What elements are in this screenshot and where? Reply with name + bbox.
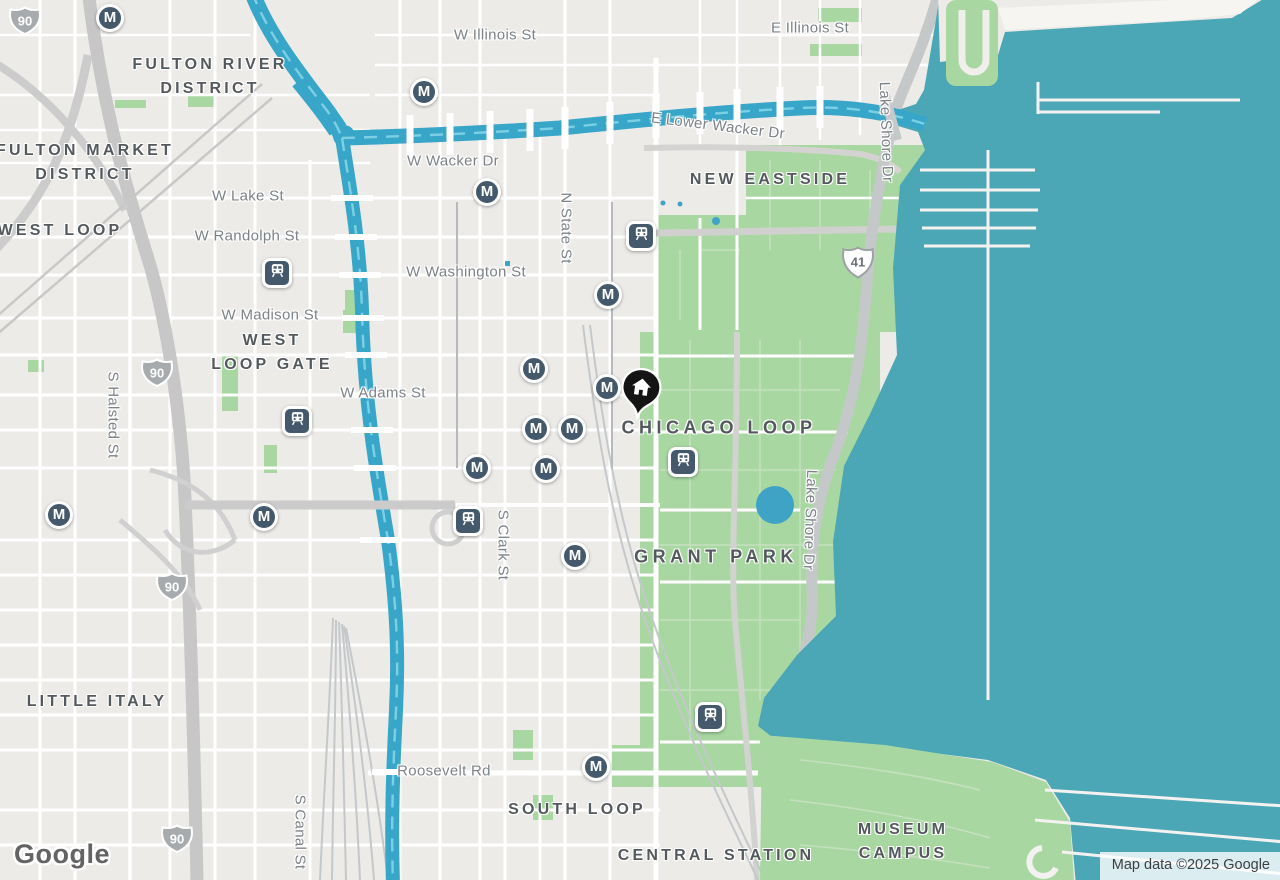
home-saved-place-pin[interactable]	[612, 363, 668, 432]
metro-station-marker-1[interactable]: M	[96, 4, 124, 32]
metro-station-marker-10[interactable]: M	[532, 455, 560, 483]
metro-station-marker-12[interactable]: M	[250, 503, 278, 531]
street-label-e-illinois-st: E Illinois St	[771, 20, 849, 37]
street-label-roosevelt-rd: Roosevelt Rd	[397, 763, 491, 780]
map-canvas[interactable]: FULTON RIVER DISTRICTFULTON MARKET DISTR…	[0, 0, 1280, 880]
metro-station-marker-2[interactable]: M	[410, 78, 438, 106]
rail-station-marker-16[interactable]	[626, 221, 656, 251]
google-logo: Google	[14, 839, 110, 870]
street-label-w-wacker-dr: W Wacker Dr	[407, 153, 499, 170]
street-label-w-lake-st: W Lake St	[212, 188, 284, 205]
train-icon	[460, 510, 477, 532]
street-label-w-washington-st: W Washington St	[406, 264, 526, 281]
street-label-lake-shore-dr-south: Lake Shore Dr	[800, 469, 821, 570]
fountain	[756, 486, 794, 524]
street-label-s-canal-st: S Canal St	[292, 795, 309, 870]
district-label-grant-park: GRANT PARK	[634, 544, 798, 571]
street-label-w-illinois-st: W Illinois St	[454, 27, 536, 44]
street-label-lake-shore-dr-north: Lake Shore Dr	[876, 81, 897, 182]
route-shield-us-highway-41: 41	[840, 246, 876, 285]
metro-station-marker-13[interactable]: M	[561, 542, 589, 570]
rail-station-marker-19[interactable]	[668, 447, 698, 477]
train-icon	[633, 225, 650, 247]
district-label-south-loop: SOUTH LOOP	[508, 798, 646, 822]
metro-station-marker-4[interactable]: M	[594, 281, 622, 309]
rail-station-marker-15[interactable]	[262, 258, 292, 288]
rail-station-marker-18[interactable]	[453, 506, 483, 536]
district-label-west-loop: WEST LOOP	[0, 219, 122, 243]
metro-station-marker-8[interactable]: M	[558, 415, 586, 443]
svg-text:90: 90	[150, 366, 164, 381]
svg-text:90: 90	[170, 832, 184, 847]
district-label-west-loop-gate: WEST LOOP GATE	[211, 329, 333, 377]
route-shield-interstate-90: 90	[7, 6, 43, 43]
street-label-w-randolph-st: W Randolph St	[195, 228, 300, 245]
district-label-fulton-market-district: FULTON MARKET DISTRICT	[0, 139, 174, 187]
street-label-s-halsted-st: S Halsted St	[105, 372, 122, 459]
svg-text:41: 41	[851, 255, 865, 270]
metro-station-marker-9[interactable]: M	[463, 454, 491, 482]
train-icon	[702, 706, 719, 728]
train-icon	[269, 262, 286, 284]
pin-shape	[618, 367, 662, 420]
street-label-s-clark-st: S Clark St	[495, 510, 512, 581]
route-shield-interstate-90: 90	[139, 358, 175, 395]
rail-station-marker-17[interactable]	[282, 406, 312, 436]
street-label-w-madison-st: W Madison St	[222, 307, 319, 324]
map-attribution: Map data ©2025 Google	[1100, 852, 1280, 880]
metro-station-marker-5[interactable]: M	[520, 355, 548, 383]
rail-station-marker-20[interactable]	[695, 702, 725, 732]
metro-station-marker-14[interactable]: M	[582, 753, 610, 781]
street-label-n-state-st: N State St	[558, 192, 575, 263]
route-shield-interstate-90: 90	[154, 572, 190, 609]
metro-station-marker-3[interactable]: M	[473, 178, 501, 206]
metro-station-marker-11[interactable]: M	[45, 501, 73, 529]
train-icon	[675, 451, 692, 473]
street-label-w-adams-st: W Adams St	[340, 385, 426, 402]
district-label-museum-campus: MUSEUM CAMPUS	[858, 818, 948, 866]
train-icon	[289, 410, 306, 432]
district-label-little-italy: LITTLE ITALY	[27, 690, 168, 714]
route-shield-interstate-90: 90	[159, 824, 195, 861]
svg-text:90: 90	[165, 580, 179, 595]
district-label-fulton-river-district: FULTON RIVER DISTRICT	[132, 53, 287, 101]
metro-station-marker-7[interactable]: M	[522, 415, 550, 443]
svg-text:90: 90	[18, 14, 32, 29]
district-label-central-station: CENTRAL STATION	[618, 844, 814, 868]
district-label-new-eastside: NEW EASTSIDE	[690, 168, 850, 192]
